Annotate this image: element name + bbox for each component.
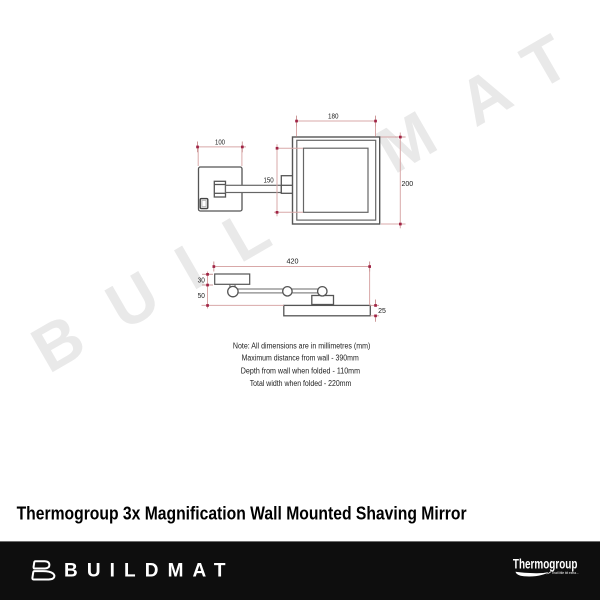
svg-text:100: 100 [215,137,225,146]
svg-text:That little bit extra...: That little bit extra... [552,571,579,575]
svg-text:Depth from wall when folded -: Depth from wall when folded - 110mm [241,366,360,375]
svg-text:Total width when folded - 220m: Total width when folded - 220mm [250,379,352,388]
svg-text:420: 420 [287,257,299,266]
svg-text:180: 180 [328,112,339,121]
svg-text:Thermogroup: Thermogroup [513,557,578,572]
svg-text:150: 150 [263,176,273,185]
svg-text:Note: All dimensions are in mi: Note: All dimensions are in millimetres … [233,341,371,350]
svg-text:50: 50 [198,291,205,300]
svg-text:200: 200 [401,179,413,188]
svg-text:Maximum distance from wall - 3: Maximum distance from wall - 390mm [242,354,359,363]
svg-text:BUILDMAT: BUILDMAT [64,560,235,581]
svg-text:30: 30 [198,275,205,284]
svg-text:25: 25 [378,306,386,315]
svg-text:Thermogroup 3x Magnification W: Thermogroup 3x Magnification Wall Mounte… [17,503,467,523]
